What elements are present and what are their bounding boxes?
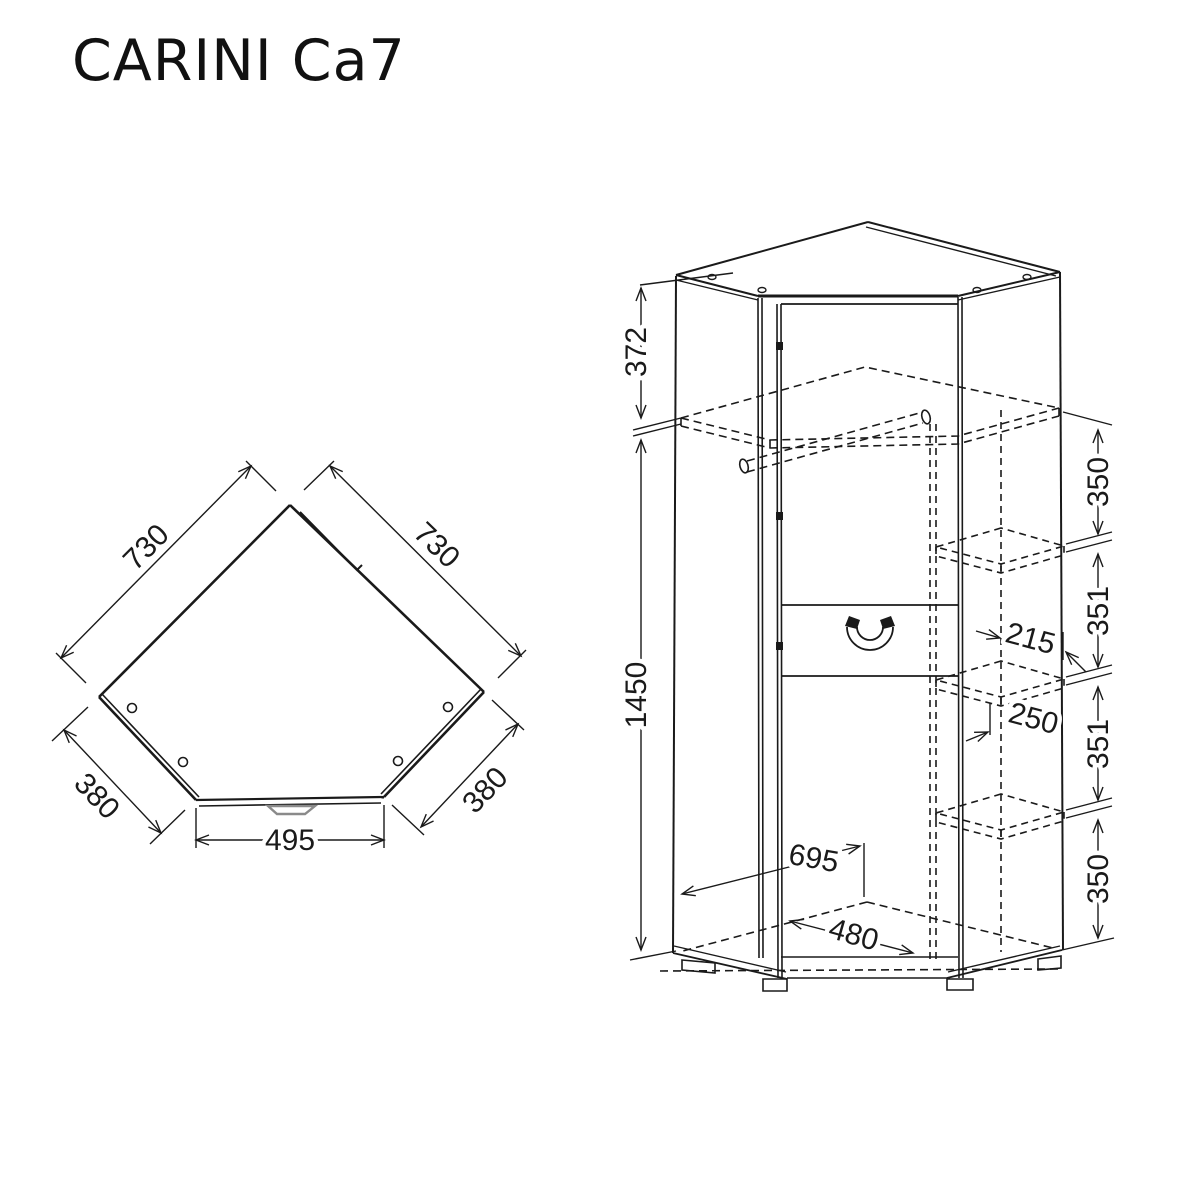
interior-partition <box>930 410 1001 960</box>
interior-top-shelf <box>681 367 1059 448</box>
dim-top-section: 372 <box>620 327 653 377</box>
dim-plan-front-width: 495 <box>265 824 315 857</box>
plan-view: 730 730 380 380 495 <box>52 461 526 857</box>
dim-plan-right-side: 730 <box>407 516 466 575</box>
hinge-mark <box>776 642 783 650</box>
hinge-mark <box>776 512 783 520</box>
cabinet-top-panel <box>676 222 1060 304</box>
dim-gap-4: 350 <box>1082 854 1115 904</box>
hinge-mark <box>776 342 783 350</box>
plan-drill-holes <box>128 703 453 767</box>
dim-interior-width: 695 <box>786 838 841 879</box>
dim-shelf-inset: 215 <box>1002 616 1059 661</box>
dim-shelf-width: 250 <box>1005 696 1062 741</box>
plan-foot <box>268 806 315 814</box>
hanging-rod <box>738 409 932 474</box>
dim-gap-3: 351 <box>1082 719 1115 769</box>
dim-gap-2: 351 <box>1082 586 1115 636</box>
cabinet-body <box>673 272 1063 979</box>
technical-drawing: 730 730 380 380 495 <box>0 0 1191 1191</box>
front-view: 372 1450 350 351 351 350 21 <box>620 222 1115 991</box>
dim-plan-right-depth: 380 <box>456 761 514 820</box>
dim-plan-left-depth: 380 <box>67 767 125 826</box>
front-right-dimensions: 350 351 351 350 <box>1062 412 1115 950</box>
drawer <box>781 605 958 676</box>
dim-interior-diagonal: 480 <box>825 912 882 958</box>
dim-gap-1: 350 <box>1082 457 1115 507</box>
drawing-sheet: CARINI Ca7 <box>0 0 1191 1191</box>
dim-body-height: 1450 <box>620 662 653 729</box>
drawer-handle <box>845 616 895 650</box>
dim-plan-left-side: 730 <box>117 518 176 577</box>
